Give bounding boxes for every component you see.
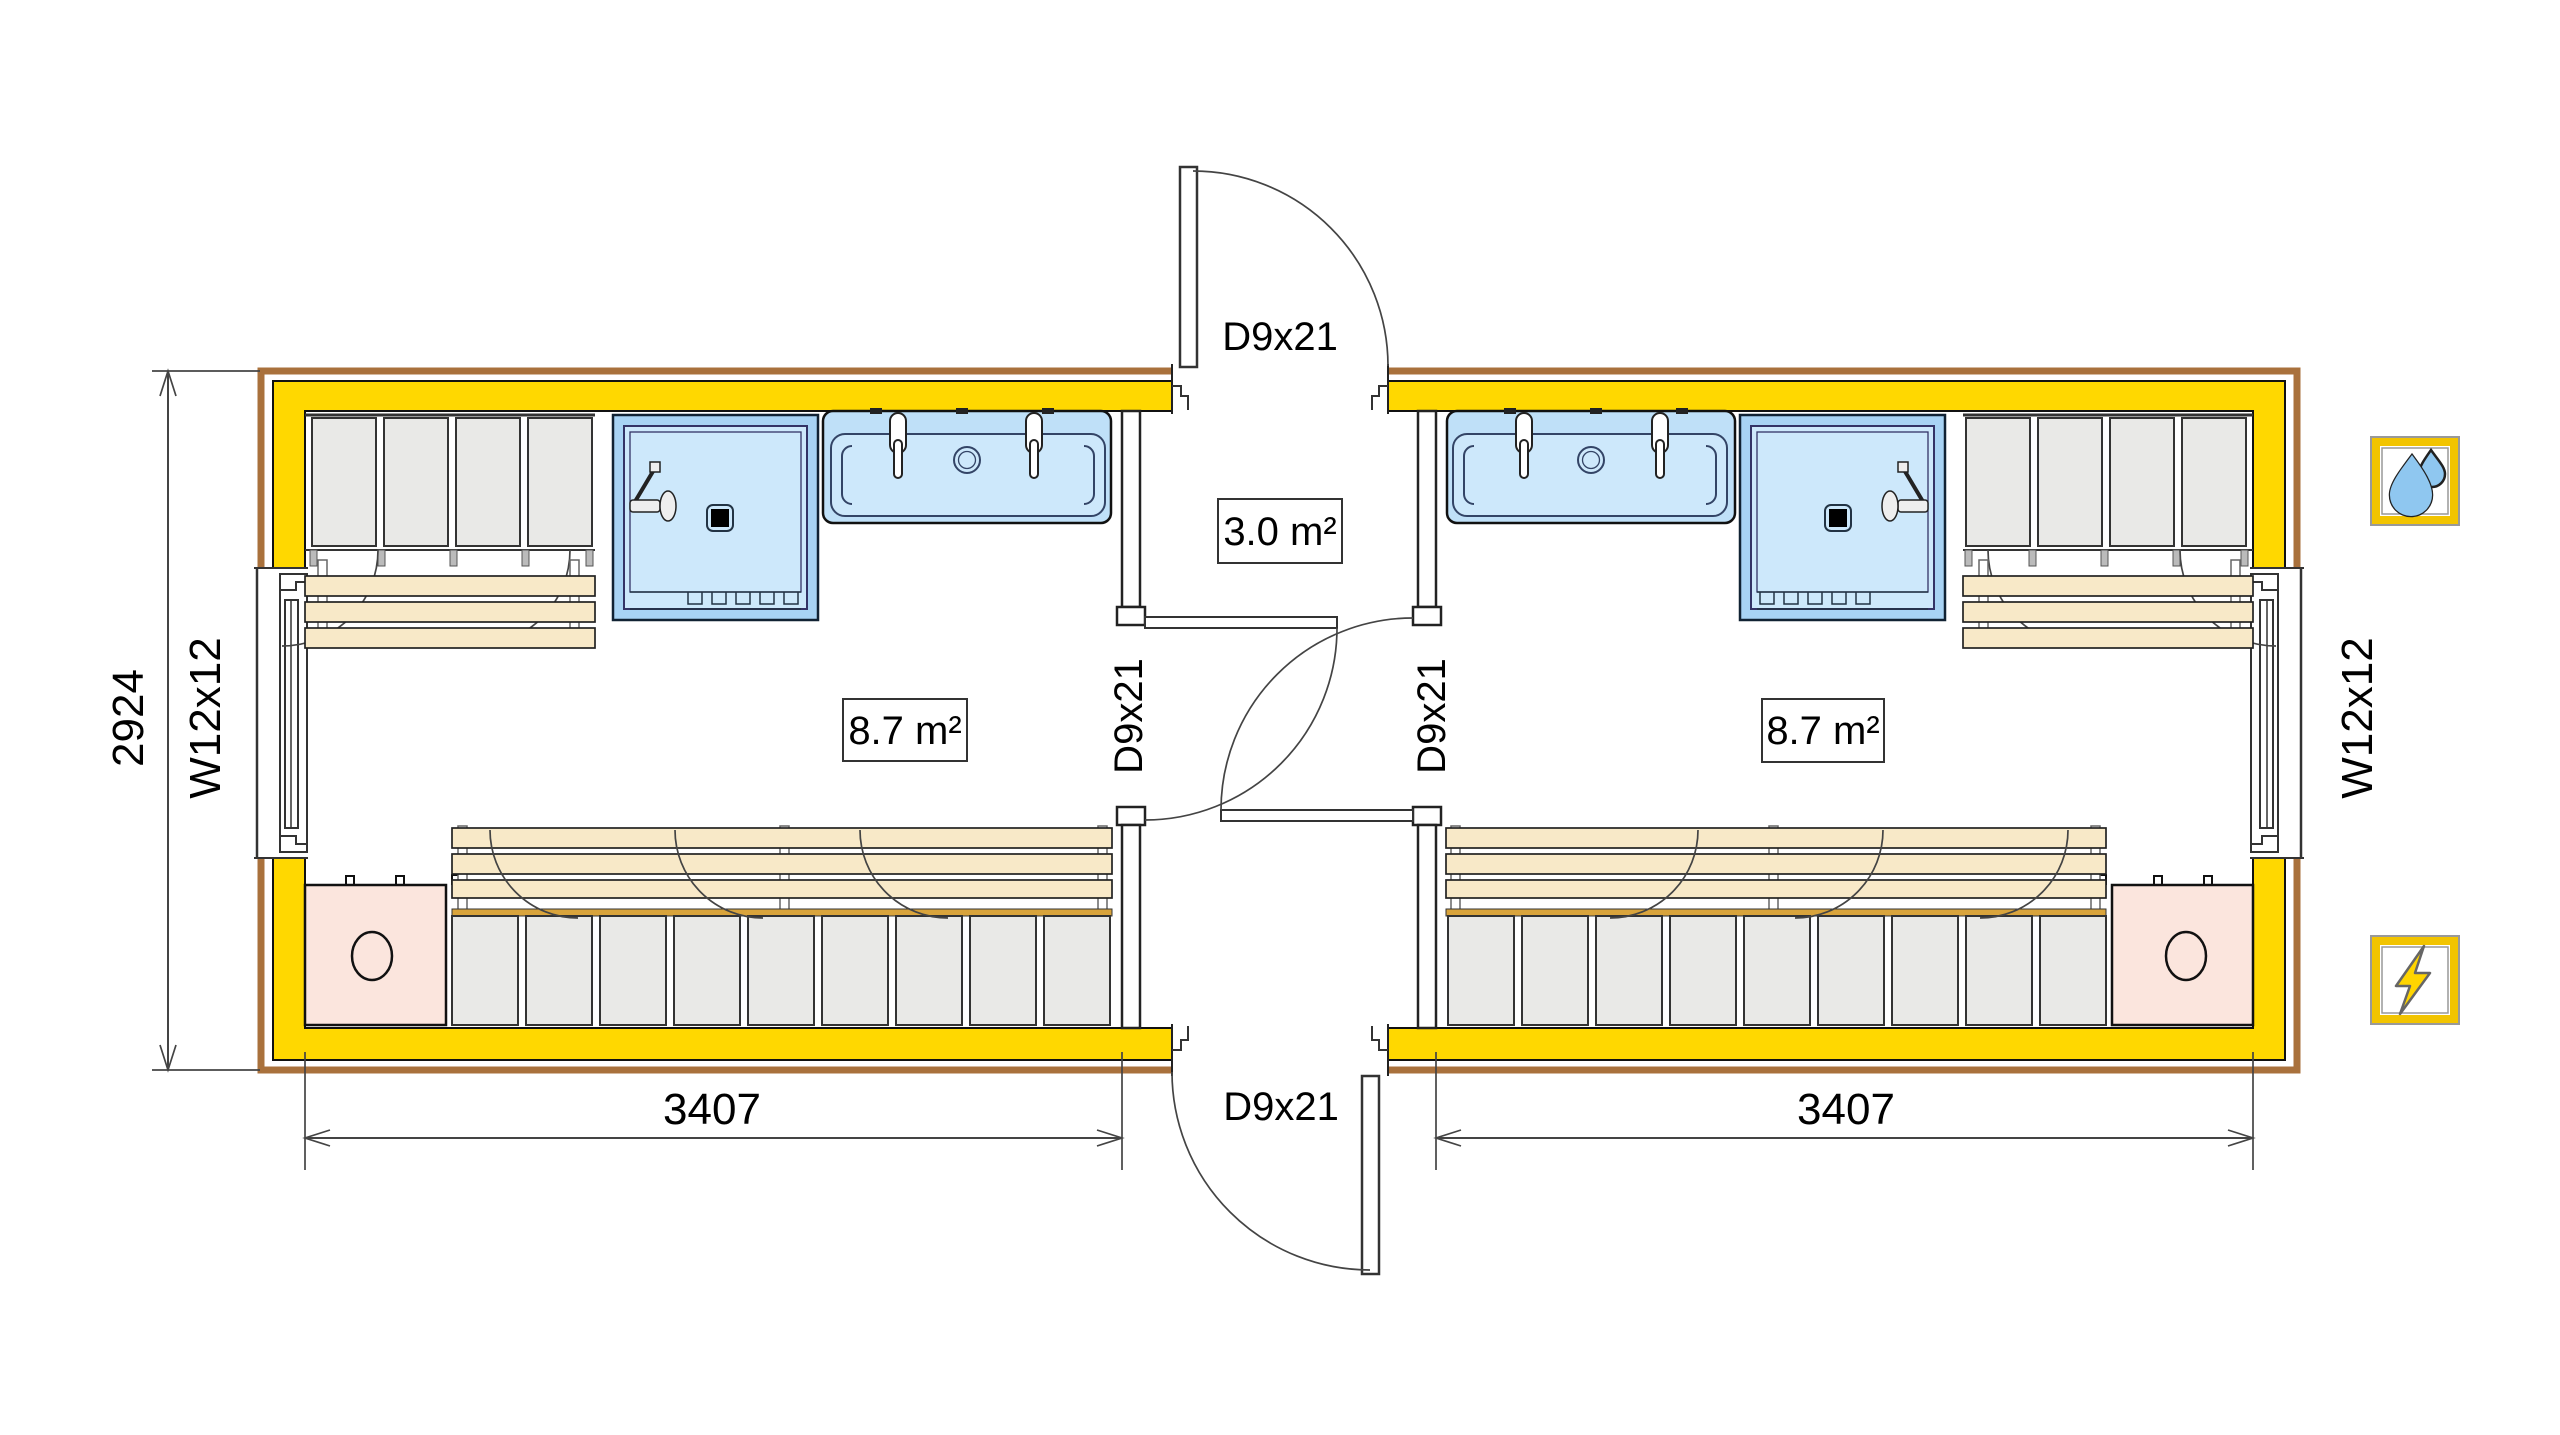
left-room-area-label: 8.7 m² xyxy=(843,699,967,761)
locker-door-panel xyxy=(452,916,518,1025)
svg-text:8.7 m²: 8.7 m² xyxy=(848,709,961,753)
locker-door-panel xyxy=(384,418,448,546)
locker-door-panel xyxy=(456,418,520,546)
left-partition-lower xyxy=(1122,825,1140,1028)
bench-slat xyxy=(452,854,1112,874)
right-module-dimension-label: 3407 xyxy=(1797,1085,1895,1134)
bench-slat xyxy=(305,576,595,596)
shower xyxy=(613,415,818,620)
door-leaf xyxy=(1145,617,1337,628)
bench-slat xyxy=(305,628,595,648)
locker-door-panel xyxy=(600,916,666,1025)
window-symbol-right xyxy=(2250,568,2304,858)
left-partition-upper xyxy=(1122,411,1140,607)
top-door-opening xyxy=(1172,364,1388,414)
locker-door-panel xyxy=(674,916,740,1025)
top-entry-opening xyxy=(1172,364,1388,414)
window-symbol xyxy=(254,568,308,858)
door-leaf xyxy=(1221,810,1413,821)
bottom-entry-opening xyxy=(1172,1024,1388,1076)
left-module-dimension-label: 3407 xyxy=(663,1085,761,1134)
right-room-area-label: 8.7 m² xyxy=(1762,699,1884,762)
left-partition-jamb-top xyxy=(1117,607,1145,625)
door-leaf xyxy=(1180,167,1197,367)
utility-counter xyxy=(305,875,466,1025)
wash-trough xyxy=(823,408,1111,523)
right-partition-upper xyxy=(1418,411,1436,607)
left-partition-jamb-bottom xyxy=(1117,807,1145,825)
locker-door-panel xyxy=(896,916,962,1025)
right-window-label: W12x12 xyxy=(2333,637,2382,798)
bottom-door-label: D9x21 xyxy=(1223,1085,1339,1129)
bench-slat xyxy=(452,828,1112,848)
left-window-label: W12x12 xyxy=(181,637,230,798)
locker-door-panel xyxy=(970,916,1036,1025)
svg-text:3.0 m²: 3.0 m² xyxy=(1223,510,1336,554)
hall-area-label: 3.0 m² xyxy=(1218,499,1342,563)
door-leaf xyxy=(1362,1076,1379,1274)
bench-slat xyxy=(305,602,595,622)
top-door-label: D9x21 xyxy=(1222,315,1338,359)
lightning-bolt-icon xyxy=(2371,936,2459,1024)
svg-text:8.7 m²: 8.7 m² xyxy=(1766,709,1879,753)
locker-door-panel xyxy=(528,418,592,546)
left-room-door-label: D9x21 xyxy=(1107,658,1151,774)
locker-door-panel xyxy=(748,916,814,1025)
water-drops-icon xyxy=(2371,437,2459,525)
locker-door-panel xyxy=(312,418,376,546)
locker-door-panel xyxy=(526,916,592,1025)
locker-door-panel xyxy=(822,916,888,1025)
right-partition-lower xyxy=(1418,825,1436,1028)
height-dimension-label: 2924 xyxy=(104,669,153,767)
right-partition-jamb-top xyxy=(1413,607,1441,625)
bench-slat xyxy=(452,880,1112,898)
bottom-door-opening xyxy=(1172,1024,1388,1076)
right-room-door-label: D9x21 xyxy=(1410,658,1454,774)
right-partition-jamb-bottom xyxy=(1413,807,1441,825)
floor-plan-drawing: D9x21 D9x21 3.0 m² 8.7 m² 8.7 m² D9x21 D… xyxy=(0,0,2560,1435)
locker-door-panel xyxy=(1044,916,1110,1025)
